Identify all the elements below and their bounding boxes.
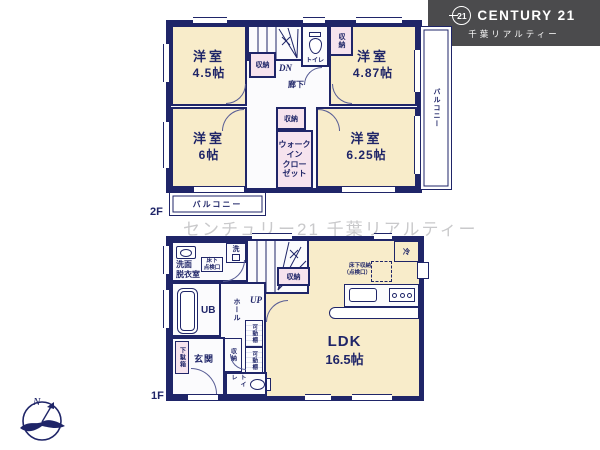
underfloor-label-line: （点検口） bbox=[339, 270, 371, 277]
room-name: 洋室 bbox=[193, 49, 225, 66]
room-size: 16.5帖 bbox=[312, 352, 377, 369]
unit-bath-1f: UB bbox=[171, 282, 221, 337]
window-mark bbox=[374, 233, 392, 240]
wic-label: ゼット bbox=[283, 169, 307, 179]
underfloor-storage-label: 床下収納 （点検口） bbox=[339, 263, 371, 276]
shelf-label: 可動棚 bbox=[251, 324, 258, 344]
window-mark bbox=[305, 394, 331, 401]
closet-label: 収納 bbox=[284, 114, 298, 124]
bathtub-icon bbox=[177, 288, 198, 334]
logo-circle-text: 21 bbox=[457, 11, 466, 21]
washroom-label-line: 洗面 bbox=[176, 260, 200, 270]
closet-center-2f: 収納 bbox=[276, 107, 306, 130]
toilet-label: トイレ bbox=[306, 55, 324, 64]
toilet-icon bbox=[250, 378, 271, 391]
compass-icon: N bbox=[16, 392, 70, 446]
toilet-room-2f: トイレ bbox=[301, 25, 329, 67]
window-mark bbox=[352, 394, 392, 401]
balcony-bottom-2f: バルコニー bbox=[169, 192, 266, 216]
floor-label-2f: 2F bbox=[150, 206, 163, 218]
window-bay bbox=[417, 262, 429, 279]
balcony-bottom-label: バルコニー bbox=[193, 199, 243, 210]
counter-front bbox=[329, 307, 419, 319]
stairs-down-label: DN bbox=[279, 63, 292, 73]
closet-by-stairs-2f: 収納 bbox=[249, 52, 276, 78]
underfloor-storage-hatch bbox=[371, 261, 392, 282]
kitchen-counter bbox=[344, 284, 419, 307]
unit-bath-label: UB bbox=[201, 305, 215, 316]
shelf-label: 可動棚 bbox=[251, 351, 258, 371]
room-size: 6帖 bbox=[199, 148, 220, 164]
walk-in-closet-2f: ウォーク イン クロー ゼット bbox=[276, 130, 313, 189]
window-mark bbox=[342, 186, 395, 193]
closet-label: 収納 bbox=[336, 33, 346, 49]
window-mark bbox=[194, 186, 244, 193]
window-mark bbox=[163, 44, 170, 82]
entrance-label: 玄関 bbox=[194, 352, 214, 365]
inspection-label-line: 床下 bbox=[202, 258, 222, 265]
window-mark bbox=[252, 233, 292, 240]
floorplan-canvas: 21 CENTURY 21 千葉リアルティー センチュリー21 千葉リアルティー… bbox=[0, 0, 600, 450]
window-mark bbox=[163, 122, 170, 168]
window-mark bbox=[193, 17, 227, 24]
movable-shelf-upper: 可動棚 bbox=[245, 320, 263, 347]
kitchen-sink-icon bbox=[349, 288, 377, 302]
inspection-hatch: 床下 点検口 bbox=[201, 257, 223, 272]
compass-north-label: N bbox=[32, 396, 41, 408]
washbasin-icon bbox=[176, 246, 196, 259]
room-size: 4.87帖 bbox=[353, 66, 393, 82]
window-mark bbox=[414, 50, 421, 92]
window-mark bbox=[163, 290, 170, 328]
shoe-cabinet-label: 下駄箱 bbox=[178, 347, 187, 368]
wic-label: イン bbox=[287, 150, 303, 160]
room-name: LDK bbox=[312, 332, 377, 352]
toilet-icon bbox=[309, 32, 321, 37]
underfloor-label-line: 床下収納 bbox=[339, 263, 371, 270]
hallway-label: 廊下 bbox=[288, 79, 304, 90]
balcony-right-label: バルコニー bbox=[431, 88, 441, 128]
closet-by-stairs-1f: 収納 bbox=[277, 267, 310, 286]
century21-logo: 21 CENTURY 21 千葉リアルティー bbox=[428, 0, 600, 46]
ldk-room: LDK 16.5帖 bbox=[312, 332, 377, 368]
room-name: 洋室 bbox=[193, 131, 225, 148]
closet-label: 収納 bbox=[256, 60, 270, 70]
wic-label: クロー bbox=[283, 160, 307, 170]
window-mark bbox=[188, 394, 218, 401]
window-mark bbox=[414, 116, 421, 174]
fridge-label: 冷 bbox=[403, 247, 410, 257]
room-size: 6.25帖 bbox=[346, 148, 386, 164]
room-size: 4.5帖 bbox=[193, 66, 226, 82]
logo-row: 21 CENTURY 21 bbox=[452, 6, 575, 25]
floor-label-1f: 1F bbox=[151, 390, 164, 402]
wic-label: ウォーク bbox=[279, 140, 311, 150]
washroom-label-line: 脱衣室 bbox=[176, 270, 200, 280]
stairs-up-label: UP bbox=[250, 295, 262, 305]
window-mark bbox=[163, 246, 170, 274]
closet-label: 収納 bbox=[287, 272, 301, 282]
fridge-space: 冷 bbox=[394, 241, 419, 262]
laundry-label: 洗 bbox=[227, 244, 245, 254]
century21-circle-icon: 21 bbox=[452, 6, 471, 25]
washroom-label: 洗面 脱衣室 bbox=[176, 260, 200, 280]
balcony-right-2f: バルコニー bbox=[420, 26, 452, 190]
logo-brand: CENTURY 21 bbox=[477, 8, 575, 23]
hall-label: ホール bbox=[231, 298, 241, 322]
toilet-room-1f: トイレ bbox=[225, 372, 267, 396]
closet-ne-2f: 収納 bbox=[329, 25, 353, 56]
shoe-cabinet: 下駄箱 bbox=[175, 341, 189, 374]
room-name: 洋室 bbox=[350, 131, 382, 148]
room-name: 洋室 bbox=[357, 49, 389, 66]
logo-subtitle: 千葉リアルティー bbox=[468, 28, 559, 40]
stove-icon bbox=[389, 288, 415, 302]
toilet-icon bbox=[309, 38, 322, 54]
window-mark bbox=[303, 17, 325, 24]
inspection-label-line: 点検口 bbox=[202, 265, 222, 272]
movable-shelf-lower: 可動棚 bbox=[245, 347, 263, 374]
toilet-label: トイレ bbox=[229, 374, 247, 394]
window-mark bbox=[356, 17, 402, 24]
